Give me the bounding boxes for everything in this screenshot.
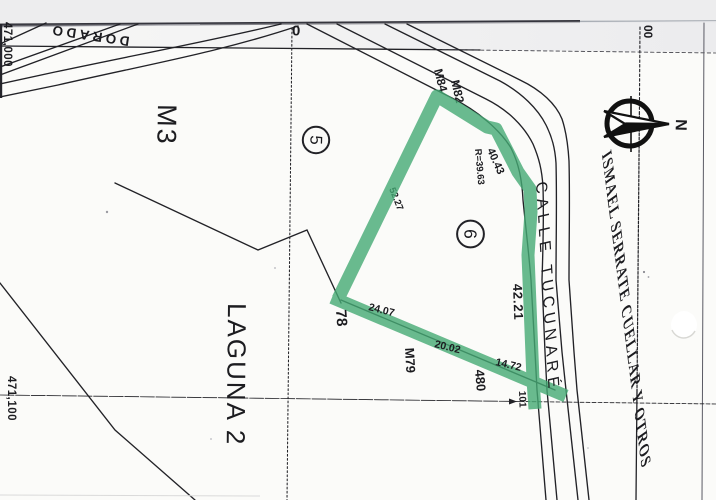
svg-text:78: 78 bbox=[332, 309, 350, 327]
svg-text:N: N bbox=[672, 119, 689, 131]
svg-text:M79: M79 bbox=[402, 347, 418, 373]
svg-text:6: 6 bbox=[460, 229, 480, 239]
svg-text:42.21: 42.21 bbox=[510, 284, 526, 321]
svg-text:LAGUNA 2: LAGUNA 2 bbox=[221, 303, 252, 446]
svg-text:M3: M3 bbox=[151, 104, 182, 146]
svg-text:0: 0 bbox=[292, 23, 300, 40]
svg-text:471,100: 471,100 bbox=[5, 376, 17, 421]
svg-text:101: 101 bbox=[516, 391, 528, 408]
svg-text:00: 00 bbox=[641, 25, 655, 39]
svg-text:480: 480 bbox=[472, 369, 489, 392]
svg-text:5: 5 bbox=[306, 135, 325, 145]
svg-text:471,000: 471,000 bbox=[1, 22, 13, 67]
